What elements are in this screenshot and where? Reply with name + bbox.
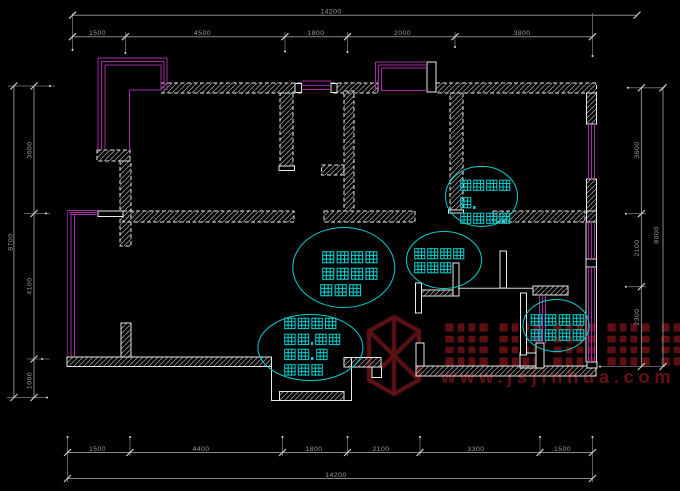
svg-text:3600: 3600 — [27, 141, 34, 158]
svg-text:4500: 4500 — [194, 30, 211, 37]
svg-text:1500: 1500 — [89, 446, 106, 453]
svg-text:14200: 14200 — [325, 472, 346, 479]
svg-text:14200: 14200 — [320, 9, 341, 16]
svg-text:2100: 2100 — [372, 446, 389, 453]
svg-text:3300: 3300 — [467, 446, 484, 453]
svg-text:8000: 8000 — [654, 226, 661, 243]
svg-text:1800: 1800 — [305, 446, 322, 453]
svg-text:1000: 1000 — [27, 372, 34, 389]
svg-text:1800: 1800 — [307, 30, 324, 37]
svg-text:2300: 2300 — [634, 308, 641, 325]
svg-text:2100: 2100 — [634, 239, 641, 256]
svg-text:1500: 1500 — [89, 30, 106, 37]
svg-text:4400: 4400 — [192, 446, 209, 453]
svg-text:8700: 8700 — [8, 233, 15, 250]
svg-text:4100: 4100 — [27, 277, 34, 294]
svg-text:3600: 3600 — [634, 141, 641, 158]
svg-text:1500: 1500 — [554, 446, 571, 453]
svg-text:2000: 2000 — [394, 30, 411, 37]
svg-text:3800: 3800 — [513, 30, 530, 37]
